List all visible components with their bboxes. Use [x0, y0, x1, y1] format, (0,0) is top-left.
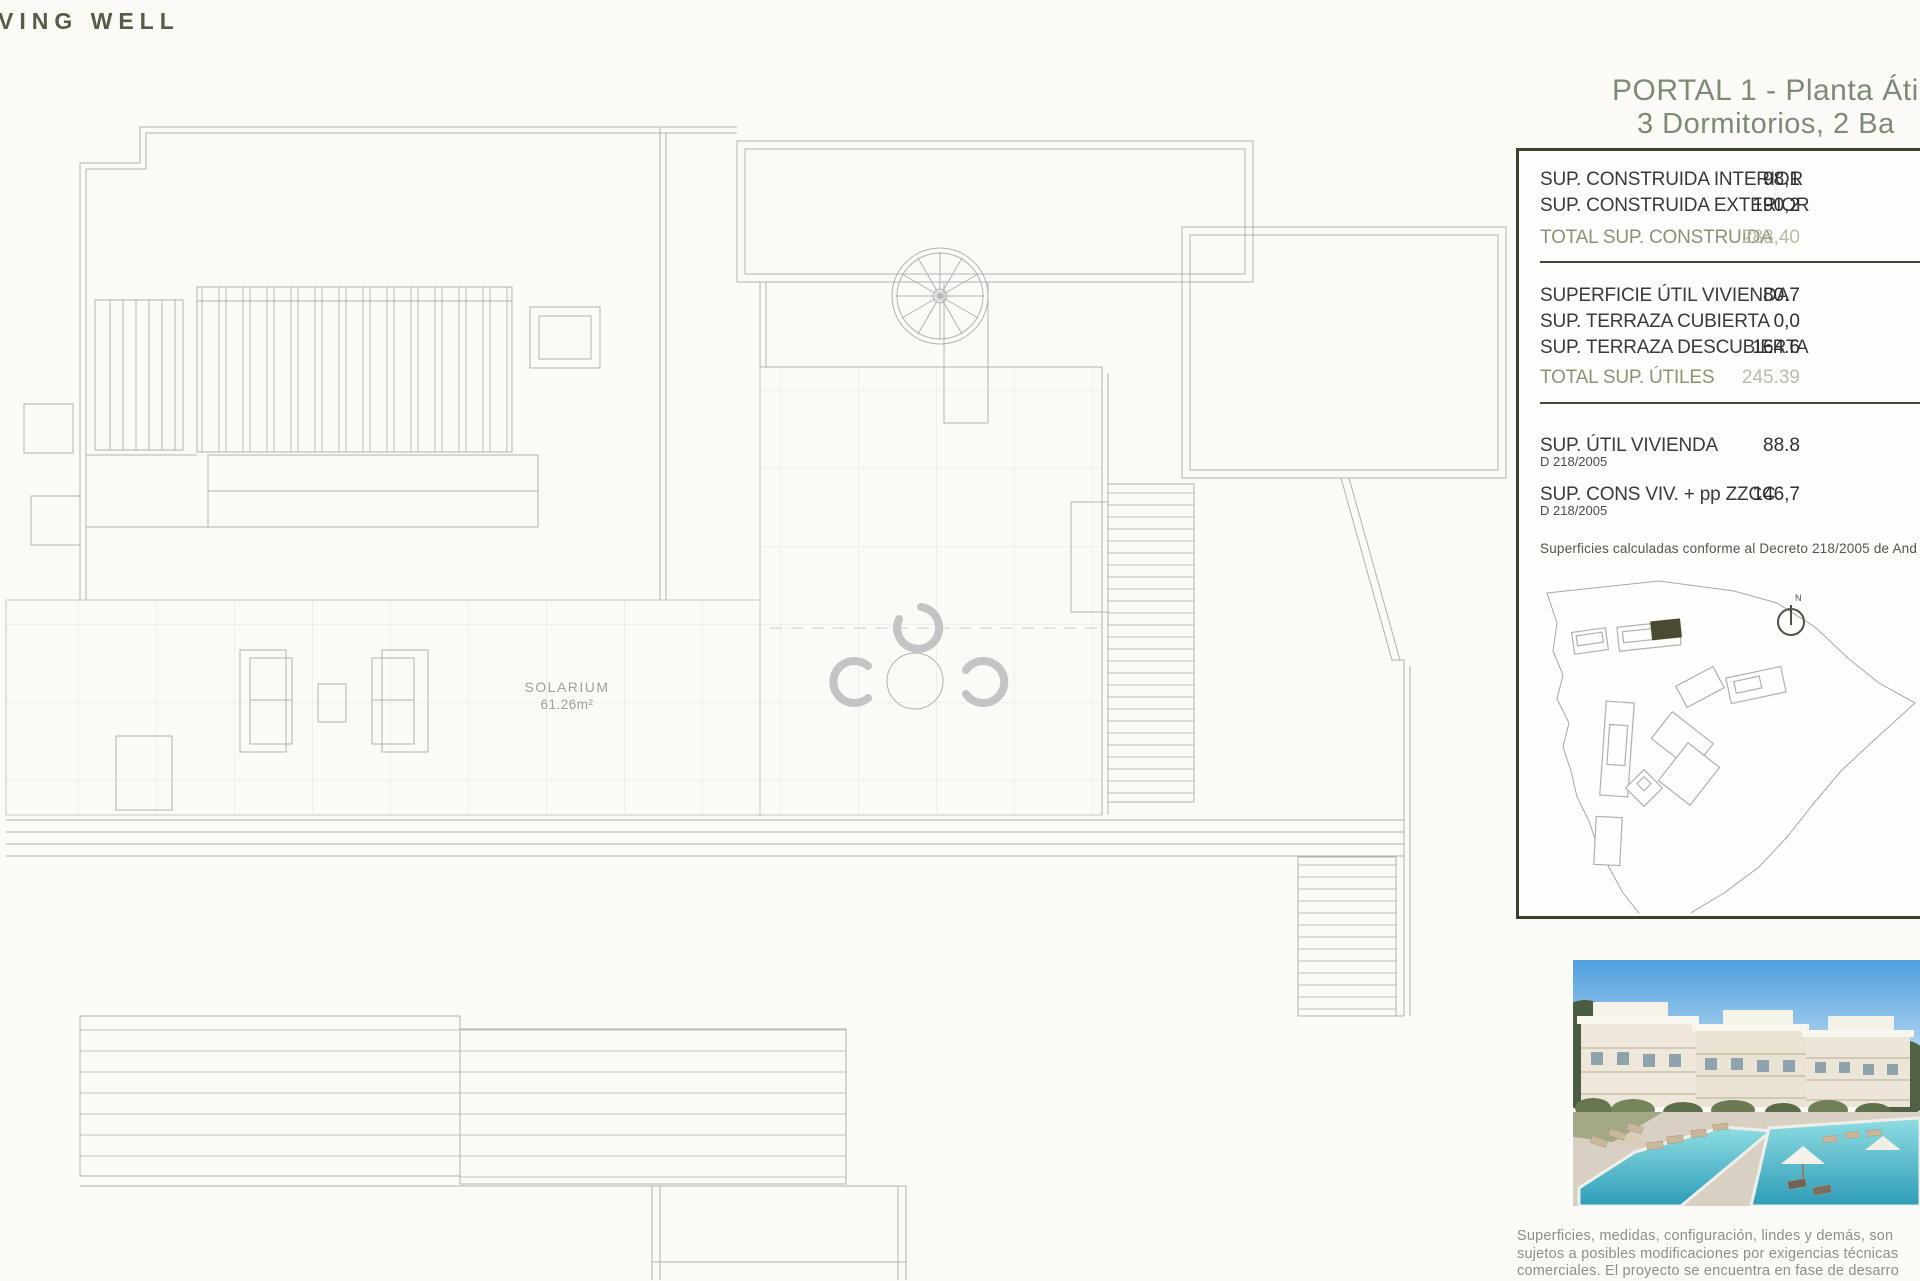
area-row: SUP. TERRAZA DESCUBIERTA 164.6: [1519, 337, 1920, 363]
total-row: TOTAL SUP. CONSTRUIDA 288,40: [1519, 227, 1920, 253]
highlighted-unit: [1650, 618, 1682, 640]
panel-footnote: Superficies calculadas conforme al Decre…: [1540, 541, 1917, 556]
floor-plan: [0, 0, 1520, 1280]
total-row-value: 288,40: [1660, 227, 1800, 249]
area-row: SUP. TERRAZA CUBIERTA 0,0: [1519, 311, 1920, 337]
total-row: TOTAL SUP. ÚTILES 245.39: [1519, 367, 1920, 393]
site-map: N: [1519, 575, 1919, 913]
skylight: [530, 307, 600, 368]
project-render-photo: [1573, 960, 1920, 1206]
solarium-label: SOLARIUM 61.26m²: [497, 679, 637, 713]
upper-terrace: [737, 141, 1253, 282]
area-row: SUP. CONSTRUIDA INTERIOR 98,1: [1519, 169, 1920, 195]
decreto-ref: D 218/2005: [1540, 454, 1607, 469]
solarium-room-name: SOLARIUM: [497, 679, 637, 696]
deck-steps: [80, 1016, 460, 1176]
page-subtitle: 3 Dormitorios, 2 Ba: [1637, 108, 1895, 141]
disclaimer-line: comerciales. El proyecto se encuentra en…: [1517, 1263, 1899, 1281]
decreto-ref: D 218/2005: [1540, 503, 1607, 518]
disclaimer-line: Superficies, medidas, configuración, lin…: [1517, 1228, 1899, 1246]
area-row-value: 88.8: [1660, 435, 1800, 457]
area-row-value: 164.6: [1660, 337, 1800, 359]
plan-detail-rect: [31, 496, 80, 545]
divider: [1540, 261, 1920, 263]
tiled-floor: [6, 367, 1102, 815]
compass-north-label: N: [1795, 593, 1802, 603]
stairs-top-left: [95, 300, 183, 450]
apartment-buildings: [1577, 1002, 1914, 1107]
legal-disclaimer: Superficies, medidas, configuración, lin…: [1517, 1228, 1899, 1281]
area-row-value: 80.7: [1660, 285, 1800, 307]
pergola: [197, 287, 512, 452]
page-title: PORTAL 1 - Planta Áti: [1612, 74, 1919, 108]
plan-detail-rect: [24, 404, 73, 453]
planter: [208, 455, 538, 527]
stairs-right: [1298, 857, 1404, 1016]
surface-data-panel: SUP. CONSTRUIDA INTERIOR 98,1 SUP. CONST…: [1516, 148, 1920, 919]
area-row-value: 190,2: [1660, 195, 1800, 217]
area-row-value: 98,1: [1660, 169, 1800, 191]
pool-right: [1751, 1118, 1920, 1206]
solarium-area-value: 61.26m²: [497, 696, 637, 713]
wall-outline: [80, 127, 737, 169]
terrace-steps: [6, 820, 1404, 856]
total-row-value: 245.39: [1660, 367, 1800, 389]
area-row: SUP. CONSTRUIDA EXTERIOR 190,2: [1519, 195, 1920, 221]
area-row: SUPERFICIE ÚTIL VIVIENDA 80.7: [1519, 285, 1920, 311]
brand-logo: VING WELL: [0, 8, 180, 35]
area-row: SUP. CONS VIV. + pp ZZCC 146,7 D 218/200…: [1519, 484, 1920, 524]
area-row-value: 146,7: [1660, 484, 1800, 506]
area-row-value: 0,0: [1660, 311, 1800, 333]
divider: [1540, 402, 1920, 404]
deck-steps: [460, 1029, 846, 1184]
north-compass-icon: [1778, 605, 1804, 635]
disclaimer-line: sujetos a posibles modificaciones por ex…: [1517, 1246, 1899, 1264]
area-row: SUP. ÚTIL VIVIENDA 88.8 D 218/2005: [1519, 435, 1920, 475]
